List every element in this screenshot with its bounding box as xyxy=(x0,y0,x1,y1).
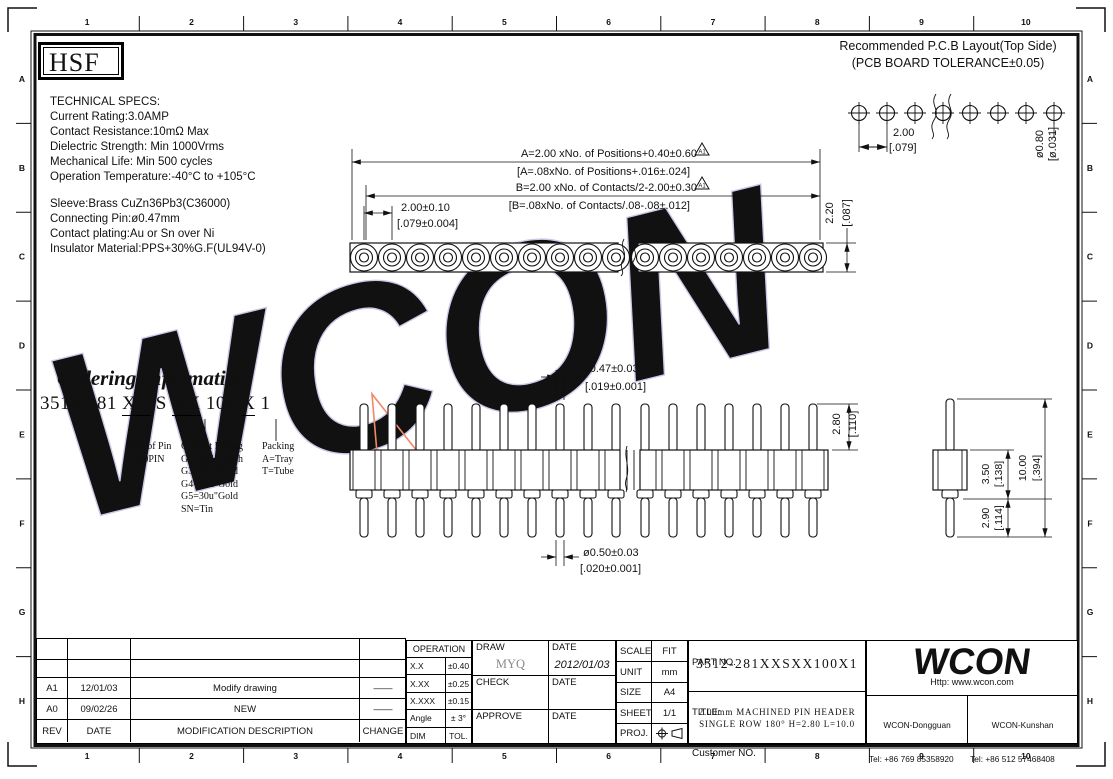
revision-header-cell: MODIFICATION DESCRIPTION xyxy=(131,720,360,742)
ordering-code-fixed: S xyxy=(151,393,173,414)
spec-line: Contact plating:Au or Sn over Ni xyxy=(50,227,266,242)
tolerance-row: X.X±0.40 xyxy=(407,658,471,675)
contact-dongguan: WCON-Dongguan Tel: +86 769 85358920 Fax:… xyxy=(867,696,968,744)
customer-label: Customer NO. xyxy=(692,748,756,759)
zone-row-label: E xyxy=(19,429,25,439)
zone-column-label: 5 xyxy=(502,751,507,761)
dim-a: A=2.00 xNo. of Positions+0.40±0.60 xyxy=(521,148,697,160)
tolerance-table: OPERATIONX.X±0.40X.XX±0.25X.XXX±0.15Angl… xyxy=(406,640,472,744)
dim-tail-diameter: ø0.50±0.03 xyxy=(583,547,639,559)
office-name: WCON-Kunshan xyxy=(970,720,1075,731)
legend-option: A=Tray xyxy=(262,454,294,467)
spec-line: Sleeve:Brass CuZn36Pb3(C36000) xyxy=(50,197,266,212)
zone-row-label: H xyxy=(1087,696,1093,706)
legend-option: SN=Tin xyxy=(181,504,243,517)
proj-symbol-cell xyxy=(652,724,687,743)
zone-column-label: 1 xyxy=(85,17,90,27)
ordering-code-variable: XX xyxy=(172,393,200,416)
zone-row-label: G xyxy=(19,607,26,617)
revision-empty-cell xyxy=(360,639,406,660)
revision-cell: A0 xyxy=(37,699,68,720)
zone-column-label: 8 xyxy=(815,17,820,27)
approve-cell: APPROVE xyxy=(473,710,549,743)
material-specs: Sleeve:Brass CuZn36Pb3(C36000)Connecting… xyxy=(50,197,266,257)
revision-cell: A1 xyxy=(37,678,68,699)
check-label: CHECK xyxy=(476,677,509,688)
pcb-layout-drawing xyxy=(848,94,1065,152)
tolerance-row: X.XX±0.25 xyxy=(407,675,471,692)
part-no-label: PART NO. xyxy=(692,657,736,668)
title-cell: TITLE: 2.00mm MACHINED PIN HEADER SINGLE… xyxy=(689,706,865,745)
draw-label: DRAW xyxy=(476,642,505,653)
revision-header-cell: REV xyxy=(37,720,68,742)
dim-pcb-pitch-inch: [.079] xyxy=(889,142,917,154)
ordering-code-fixed: 1 xyxy=(255,393,270,414)
zone-column-label: 9 xyxy=(919,17,924,27)
part-info-block: PART NO. 3512-281XXSXX100X1 TITLE: 2.00m… xyxy=(688,640,866,744)
contact-kunshan: WCON-Kunshan Tel: +86 512 57468408 Fax: … xyxy=(968,696,1077,744)
draw-date-cell: DATE 2012/01/03 xyxy=(549,641,615,676)
wcon-contacts: WCON-Dongguan Tel: +86 769 85358920 Fax:… xyxy=(867,696,1077,744)
tolerance-value: ±0.40 xyxy=(446,658,471,674)
zone-column-label: 6 xyxy=(606,751,611,761)
dim-pin-height: 2.80 xyxy=(831,413,843,434)
zone-row-label: F xyxy=(1087,518,1092,528)
tolerance-dim: X.XXX xyxy=(407,693,446,709)
zone-column-label: 7 xyxy=(711,17,716,27)
unit-label: UNIT xyxy=(617,662,652,683)
dim-body: 3.50 xyxy=(980,464,992,485)
legend-option: G3=10u"Gold xyxy=(181,466,243,479)
sheet-label: SHEET xyxy=(617,703,652,724)
dim-a-inch: [A=.08xNo. of Positions+.016±.024] xyxy=(517,166,690,178)
revision-empty-cell xyxy=(37,639,68,660)
zone-row-label: D xyxy=(19,341,25,351)
wcon-logo-cell: WCON Http: www.wcon.com xyxy=(867,641,1077,696)
revision-empty-cell xyxy=(131,660,360,678)
zone-row-label: H xyxy=(19,696,25,706)
dim-pitch-inch: [.079±0.004] xyxy=(397,218,458,230)
office-tel: Tel: +86 512 57468408 xyxy=(970,754,1075,765)
date-label: DATE xyxy=(552,642,577,653)
legend-option: 2-40PIN xyxy=(130,454,171,467)
zone-row-label: B xyxy=(1087,163,1093,173)
tolerance-dim: X.X xyxy=(407,658,446,674)
dim-b-inch: [B=.08xNo. of Contacts/.08-.08±.012] xyxy=(509,200,690,212)
date-label: DATE xyxy=(552,677,577,688)
revision-cell: NEW xyxy=(131,699,360,720)
svg-text:A1: A1 xyxy=(698,150,706,156)
dim-body-inch: [.138] xyxy=(993,461,1005,487)
revision-empty-cell xyxy=(68,660,131,678)
part-no-cell: PART NO. 3512-281XXSXX100X1 xyxy=(689,656,865,692)
legend-title: Packing xyxy=(262,441,294,454)
zone-row-label: D xyxy=(1087,341,1093,351)
ordering-code-fixed: 100 xyxy=(201,393,242,414)
ext-lines xyxy=(859,123,887,152)
zone-column-label: 3 xyxy=(293,17,298,27)
zone-column-label: 4 xyxy=(398,751,403,761)
unit-value: mm xyxy=(652,662,687,683)
dim-height: 2.20 xyxy=(824,202,836,223)
revision-cell: —— xyxy=(360,678,406,699)
tolerance-dim: X.XX xyxy=(407,675,446,691)
pcb-layout-title: Recommended P.C.B Layout(Top Side) (PCB … xyxy=(810,38,1086,72)
spec-line: Connecting Pin:ø0.47mm xyxy=(50,212,266,227)
office-tel: Tel: +86 769 85358920 xyxy=(869,754,965,765)
top-view-positions xyxy=(351,244,827,271)
tolerance-dim: Angle xyxy=(407,710,446,726)
check-date-cell: DATE xyxy=(549,676,615,710)
spec-line: TECHNICAL SPECS: xyxy=(50,95,256,110)
zone-column-label: 4 xyxy=(398,17,403,27)
projection-symbol-icon xyxy=(655,727,685,740)
spec-line: Current Rating:3.0AMP xyxy=(50,110,256,125)
dim-pin-diameter: ø0.47±0.03 xyxy=(583,363,639,375)
revision-header-cell: CHANGE xyxy=(360,720,406,742)
tolerance-value: ±0.15 xyxy=(446,693,471,709)
revision-header-cell: DATE xyxy=(68,720,131,742)
dim-height-inch: [.087] xyxy=(841,199,853,227)
office-name: WCON-Dongguan xyxy=(869,720,965,731)
customer-cell: Customer NO. xyxy=(689,745,865,772)
tolerance-value: ±0.25 xyxy=(446,675,471,691)
legend-option: G5=30u"Gold xyxy=(181,491,243,504)
ordering-code-fixed: 3512-281 xyxy=(40,393,122,414)
zone-row-label: B xyxy=(19,163,25,173)
hsf-logo-text: HSF xyxy=(43,47,119,75)
dim-tail-diameter-inch: [.020±0.001] xyxy=(580,563,641,575)
svg-text:A1: A1 xyxy=(698,184,706,190)
pcb-title-line2: (PCB BOARD TOLERANCE±0.05) xyxy=(810,55,1086,72)
tolerance-row: DIMTOL. xyxy=(407,728,471,744)
zone-row-label: C xyxy=(19,252,25,262)
approval-table: DRAW MYQ DATE 2012/01/03 CHECK DATE APPR… xyxy=(472,640,616,744)
tolerance-value: TOL. xyxy=(446,728,471,744)
scale-label: SCALE xyxy=(617,641,652,662)
zone-row-label: F xyxy=(19,518,24,528)
revision-empty-cell xyxy=(131,639,360,660)
revision-cell: 12/01/03 xyxy=(68,678,131,699)
ordering-legend-group: PackingA=TrayT=Tube xyxy=(262,441,294,479)
revision-cell: —— xyxy=(360,699,406,720)
dim-pcb-hole: ø0.80 xyxy=(1034,130,1046,158)
approve-date-cell: DATE xyxy=(549,710,615,743)
drawing-sheet: WCON 1122334455667788991010AABBCCDDEEFFG… xyxy=(0,0,1113,779)
revision-table: A112/01/03Modify drawing——A009/02/26NEW—… xyxy=(36,638,406,744)
legend-title: No. of Pin xyxy=(130,441,171,454)
date-label: DATE xyxy=(552,711,577,722)
tolerance-dim: DIM xyxy=(407,728,446,744)
spec-line: Mechanical Life: Min 500 cycles xyxy=(50,155,256,170)
break-lines xyxy=(932,94,951,139)
dim-tail: 2.90 xyxy=(980,508,992,529)
ordering-part-number: 3512-281 XX S XX 100 X 1 xyxy=(40,393,271,415)
spec-line: Insulator Material:PPS+30%G.F(UL94V-0) xyxy=(50,242,266,257)
wcon-logo: WCON xyxy=(865,645,1080,679)
zone-row-label: G xyxy=(1087,607,1094,617)
zone-column-label: 5 xyxy=(502,17,507,27)
legend-option: G4=15u"Gold xyxy=(181,479,243,492)
pcb-title-line1: Recommended P.C.B Layout(Top Side) xyxy=(810,38,1086,55)
info-table: SCALE FIT UNIT mm SIZE A4 SHEET 1/1 PROJ… xyxy=(616,640,688,744)
zone-column-label: 6 xyxy=(606,17,611,27)
tolerance-value: ± 3° xyxy=(446,710,471,726)
tolerance-row: X.XXX±0.15 xyxy=(407,693,471,710)
legend-title: Contact Plating xyxy=(181,441,243,454)
draw-date: 2012/01/03 xyxy=(554,659,609,671)
spec-line: Contact Resistance:10mΩ Max xyxy=(50,125,256,140)
spec-line: Dielectric Strength: Min 1000Vrms xyxy=(50,140,256,155)
dim-pin-diameter-inch: [.019±0.001] xyxy=(585,381,646,393)
size-value: A4 xyxy=(652,683,687,703)
dim-total: 10.00 xyxy=(1017,455,1029,481)
dim-pcb-pitch: 2.00 xyxy=(893,127,914,139)
dim-pin-height-inch: [.110] xyxy=(847,411,859,438)
zone-column-label: 2 xyxy=(189,751,194,761)
zone-row-label: A xyxy=(1087,74,1093,84)
revision-cell: Modify drawing xyxy=(131,678,360,699)
legend-option: G0=Gold Flash xyxy=(181,454,243,467)
tolerance-row: Angle± 3° xyxy=(407,710,471,727)
tolerance-header: OPERATION xyxy=(407,641,471,658)
size-label: SIZE xyxy=(617,683,652,703)
ordering-code-variable: X xyxy=(241,393,255,416)
scale-value: FIT xyxy=(652,641,687,662)
check-cell: CHECK xyxy=(473,676,549,710)
zone-column-label: 1 xyxy=(85,751,90,761)
legend-option: T=Tube xyxy=(262,466,294,479)
dim-total-inch: [.394] xyxy=(1031,455,1043,481)
pcb-holes xyxy=(848,102,1065,124)
part-title-line2: SINGLE ROW 180° H=2.80 L=10.0 xyxy=(689,718,865,730)
revision-empty-cell xyxy=(360,660,406,678)
draw-signature: MYQ xyxy=(496,657,525,672)
wcon-block: WCON Http: www.wcon.com WCON-Dongguan Te… xyxy=(866,640,1078,744)
dim-pcb-hole-inch: [ø.031] xyxy=(1047,127,1059,161)
zone-column-label: 10 xyxy=(1021,17,1031,27)
approve-label: APPROVE xyxy=(476,711,522,722)
dim-b: B=2.00 xNo. of Contacts/2-2.00±0.30 xyxy=(516,182,697,194)
hsf-logo: HSF xyxy=(38,42,124,80)
dim-tail-inch: [.114] xyxy=(993,505,1005,531)
title-label: TITLE: xyxy=(692,707,721,718)
technical-specs: TECHNICAL SPECS:Current Rating:3.0AMPCon… xyxy=(50,95,256,185)
spec-line: Operation Temperature:-40°C to +105°C xyxy=(50,170,256,185)
ordering-legend-group: Contact PlatingG0=Gold FlashG3=10u"GoldG… xyxy=(181,441,243,516)
ordering-legend-group: No. of Pin2-40PIN xyxy=(130,441,171,466)
dim-pitch: 2.00±0.10 xyxy=(401,202,450,214)
revision-cell: 09/02/26 xyxy=(68,699,131,720)
ordering-code-variable: XX xyxy=(122,393,150,416)
proj-label: PROJ. xyxy=(617,724,652,743)
revision-empty-cell xyxy=(37,660,68,678)
revision-empty-cell xyxy=(68,639,131,660)
zone-row-label: A xyxy=(19,74,25,84)
zone-column-label: 3 xyxy=(293,751,298,761)
draw-cell: DRAW MYQ xyxy=(473,641,549,676)
sheet-value: 1/1 xyxy=(652,703,687,724)
ordering-title: Ordering Information xyxy=(57,366,248,391)
zone-row-label: E xyxy=(1087,429,1093,439)
zone-row-label: C xyxy=(1087,252,1093,262)
zone-column-label: 2 xyxy=(189,17,194,27)
